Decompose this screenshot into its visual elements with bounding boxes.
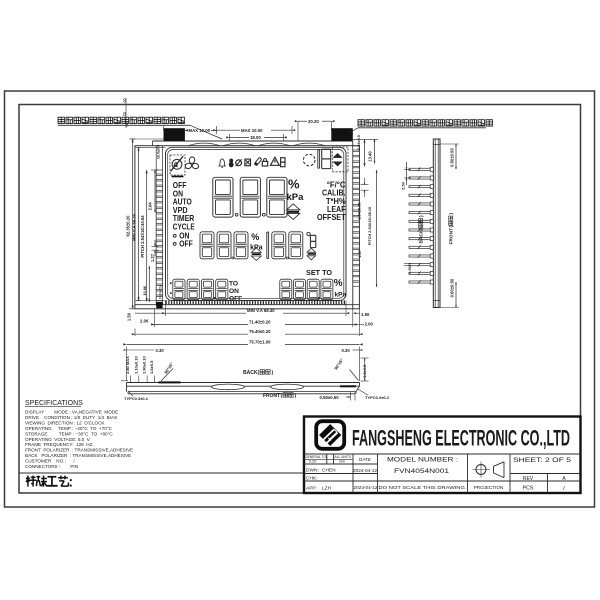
svg-text:2024-04-12: 2024-04-12 (354, 485, 378, 490)
svg-text:0.50±0.50: 0.50±0.50 (320, 395, 340, 400)
svg-text:FVN4054: FVN4054 (158, 285, 162, 299)
svg-text:75.40±0.20: 75.40±0.20 (249, 329, 271, 334)
svg-text:PITCH 2.54X16=40.64: PITCH 2.54X16=40.64 (140, 215, 145, 258)
svg-text:0.30: 0.30 (156, 348, 165, 353)
svg-text:16.0±0.5: 16.0±0.5 (156, 145, 160, 159)
svg-text:FVN4054N001: FVN4054N001 (394, 468, 449, 475)
svg-text:TO: TO (229, 281, 238, 288)
svg-text:1.50: 1.50 (361, 312, 370, 317)
svg-text:BACK: BACK (243, 370, 258, 376)
svg-text:%: % (288, 177, 300, 192)
svg-text:0.20: 0.20 (309, 460, 316, 464)
svg-text:2.64: 2.64 (148, 202, 153, 211)
svg-text:%: % (251, 232, 259, 242)
svg-text:6.94±0.5: 6.94±0.5 (357, 135, 361, 150)
svg-text:CHK:: CHK: (306, 476, 317, 482)
svg-text:FRONT: FRONT (263, 393, 280, 399)
svg-text:GENERAL TOL: GENERAL TOL (305, 455, 328, 459)
svg-text:BACK: BACK (419, 229, 425, 243)
svg-text:FANGSHENG ELECTRONIC CO.,LTD: FANGSHENG ELECTRONIC CO.,LTD (352, 426, 570, 451)
svg-text:1.50: 1.50 (127, 312, 132, 321)
svg-text:2.80 MAX: 2.80 MAX (125, 356, 130, 374)
svg-text:BACK POLARIZER : TRANSMISSI: BACK POLARIZER : TRANSMISSIVE,ADHESIVE (25, 453, 131, 458)
svg-text:1.90±0.10: 1.90±0.10 (142, 355, 147, 374)
svg-text:MIN V.A 59.35: MIN V.A 59.35 (132, 213, 137, 241)
svg-text:20.20: 20.20 (308, 119, 319, 124)
svg-text:mm: mm (339, 460, 345, 464)
svg-text:STORAGE TEMP : −30°C: STORAGE TEMP : −30°C TO +80°C (25, 431, 113, 436)
svg-text:8: 8 (123, 99, 126, 105)
svg-text:DWN:: DWN: (306, 468, 319, 474)
svg-text:LZH: LZH (322, 486, 332, 492)
svg-text:DISPLAY MODE : VA,NEGAT: DISPLAY MODE : VA,NEGATIVE MODE (25, 410, 118, 415)
svg-text:75.70±1.00: 75.70±1.00 (249, 339, 271, 344)
svg-text:MODEL NUMBER :: MODEL NUMBER : (387, 456, 458, 463)
svg-text:2024-04-12: 2024-04-12 (353, 468, 377, 473)
svg-text:OFF: OFF (229, 295, 242, 302)
svg-text:REV: REV (523, 476, 534, 482)
svg-text:APP:: APP: (306, 486, 317, 492)
svg-text:18.00: 18.00 (250, 135, 261, 140)
svg-text:PCS: PCS (523, 485, 534, 491)
svg-text:10.86: 10.86 (142, 285, 147, 296)
svg-text:71.40±0.20: 71.40±0.20 (249, 319, 271, 324)
svg-text:MAX 10.00: MAX 10.00 (189, 128, 211, 133)
svg-text:TYPC0.3±0.2: TYPC0.3±0.2 (365, 395, 390, 400)
svg-text:2.54±0.08: 2.54±0.08 (358, 203, 362, 220)
svg-text:PROJECTION: PROJECTION (474, 485, 504, 490)
svg-text:1.6±0.5: 1.6±0.5 (149, 360, 154, 374)
svg-text:PITCH 2.54X15=38.10: PITCH 2.54X15=38.10 (368, 207, 372, 245)
svg-text:0.30: 0.30 (342, 348, 351, 353)
svg-text:0.50±0.50: 0.50±0.50 (449, 148, 454, 167)
svg-text:ON: ON (229, 288, 239, 295)
svg-text:OPERATING VOLTAGE: 5.0 V: OPERATING VOLTAGE: 5.0 V (25, 437, 91, 442)
svg-text:DRIVE CONDITION : 1/8 DUTY: DRIVE CONDITION : 1/8 DUTY 1/4 BIAS (25, 415, 117, 420)
svg-text:%: % (334, 278, 343, 289)
svg-text:TYPC0.3±0.2: TYPC0.3±0.2 (124, 396, 149, 401)
svg-text:2.00: 2.00 (140, 319, 149, 324)
svg-text:CONNECTORS : PIN: CONNECTORS : PIN (25, 464, 78, 469)
svg-text:SET TO: SET TO (306, 268, 332, 277)
svg-text:FRAME FREQUENCY: 128 HZ: FRAME FREQUENCY: 128 HZ (25, 442, 93, 447)
svg-text:13.40: 13.40 (368, 151, 373, 162)
svg-text:0.60±0.50: 0.60±0.50 (449, 278, 454, 297)
svg-text:OFFSET: OFFSET (317, 212, 346, 222)
svg-text:MIN V.A 68.40: MIN V.A 68.40 (247, 308, 275, 313)
svg-text:62.35±0.20: 62.35±0.20 (125, 215, 130, 237)
svg-text:1.27: 1.27 (150, 253, 155, 262)
svg-text:MAX 10.00: MAX 10.00 (241, 128, 263, 133)
svg-text:ALL UNITS: ALL UNITS (335, 455, 352, 459)
svg-text:1.10±0.10: 1.10±0.10 (133, 355, 138, 374)
svg-text:0.50: 0.50 (407, 266, 412, 274)
svg-text:2.00: 2.00 (365, 322, 374, 327)
svg-text:1.27: 1.27 (358, 250, 362, 257)
svg-text:FRONT: FRONT (449, 228, 455, 245)
svg-text:OFF: OFF (179, 239, 193, 249)
svg-text:kPa: kPa (287, 192, 305, 203)
svg-text:OPERATING TEMP : −20°C TO: OPERATING TEMP : −20°C TO +70°C (25, 426, 113, 431)
svg-text:kPa: kPa (335, 292, 347, 299)
svg-text:SHEET: 2 OF 5: SHEET: 2 OF 5 (513, 457, 572, 464)
svg-text:FRONT POLARIZER : TRANSMISSI: FRONT POLARIZER : TRANSMISSIVE,ADHESIVE (25, 448, 133, 453)
svg-text:2.54: 2.54 (401, 181, 406, 189)
svg-text:CHEN: CHEN (322, 468, 336, 474)
svg-text:VIEWING DIRECTION : 12 O'CLO: VIEWING DIRECTION : 12 O'CLOCK (25, 420, 105, 425)
svg-text:CUSTOMER NO.: /: CUSTOMER NO.: / (25, 459, 75, 464)
svg-text:DO NOT SCALE THIS DRAWING.: DO NOT SCALE THIS DRAWING. (379, 485, 467, 490)
svg-text:DATE: DATE (359, 457, 371, 462)
